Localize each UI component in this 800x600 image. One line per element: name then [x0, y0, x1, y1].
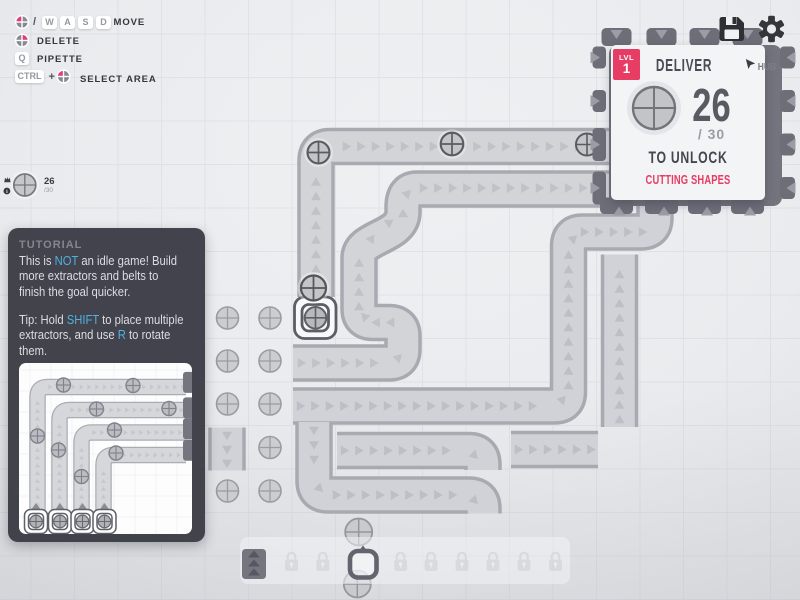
svg-text:/30: /30 — [44, 187, 53, 194]
svg-text:26: 26 — [44, 176, 55, 187]
